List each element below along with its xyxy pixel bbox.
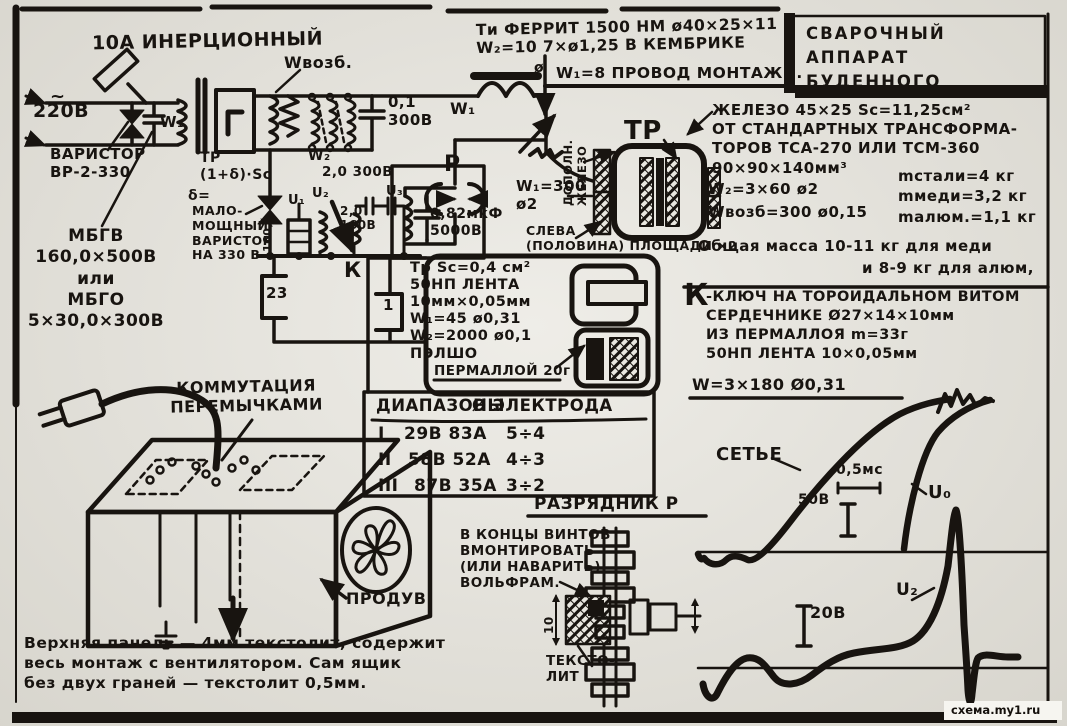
table-row-3-range: III [378,476,398,496]
label-airflow: ПРОДУВ [346,590,427,609]
table-header-electrode: Ø ЭЛЕКТРОДА [472,396,613,415]
label-mains-curve: СЕТЬЕ [716,444,782,465]
label-w1-300: W₁=300 ø2 [516,178,586,213]
label-tr-core: ТР (1+δ)·Sc [200,150,272,183]
label-excitation-winding: Wвозб. [284,54,352,73]
watermark: схема.my1.ru [948,703,1043,717]
label-terminal-23: 23 [266,285,288,303]
label-dim-10: 10 [542,616,556,634]
label-tr-small-spec: Тр Sc=0,4 см² 50НП ЛЕНТА 10мм×0,05мм W₁=… [410,260,532,363]
label-mains-voltage: 220В [33,100,89,122]
table-row-2-range: II [378,450,392,470]
label-masses: mстали=4 кг mмеди=3,2 кг mалюм.=1,1 кг [898,166,1036,227]
label-diameter-sign: ø [534,60,544,77]
label-cap-20-160: 2,0 160В [340,204,376,232]
schematic-page: СВАРОЧНЫЙ АППАРАТ БУДЕННОГО 10А ИНЕРЦИОН… [0,0,1067,726]
label-u2-curve: U₂ [896,580,918,600]
label-total-mass-2: и 8-9 кг для алюм, [862,260,1034,278]
label-spark-gap-title: РАЗРЯДНИК Р [534,494,679,514]
table-row-1-mode: 29В 83А [404,424,487,444]
label-permalloy: ПЕРМАЛЛОЙ 20г [434,364,571,380]
label-key-k: К [344,258,362,283]
label-key-spec: -КЛЮЧ НА ТОРОИДАЛЬНОМ ВИТОМ СЕРДЕЧНИКЕ Ø… [706,288,1020,363]
label-commutation: КОММУТАЦИЯ ПЕРЕМЫЧКАМИ [170,376,323,417]
table-row-2-mode: 58В 52А [408,450,491,470]
table-row-2-electrode: 4÷3 [506,450,545,470]
table-row-3-electrode: 3÷2 [506,476,545,496]
label-u3: U₃ [386,184,403,199]
label-terminal-1: 1 [383,297,394,315]
label-w1-winding: W₁ [160,114,184,132]
label-timescale: 0,5мс [836,462,883,479]
label-u0-curve: U₀ [928,482,952,503]
label-w2-winding: W₂ [308,148,331,165]
label-panel-note: Верхняя панель — 4мм текстолит, содержит… [24,633,445,693]
label-total-mass: Общая масса 10-11 кг для меди [698,238,992,256]
label-textolite: ТЕКСТО- ЛИТ [546,654,615,686]
label-cap-082: 0,82мкФ 5000В [430,206,503,239]
label-toroid-w1: W₁ [450,100,476,119]
table-row-3-mode: 87В 35А [414,476,497,496]
label-u1: U₁ [288,193,305,208]
label-capacitor-type: МБГВ 160,0×500В или МБГО 5×30,0×300В [20,226,172,332]
label-tungsten-note: В КОНЦЫ ВИНТОВ ВМОНТИРОВАТЬ (ИЛИ НАВАРИТ… [460,528,611,592]
label-key-winding: W=3×180 Ø0,31 [692,376,846,395]
label-spark-gap-p: Р [444,152,461,178]
label-cap-20: 2,0 300В [322,165,393,181]
label-tr-big: ТР [624,116,662,147]
label-varistor: ВАРИСТОР ВР-2-330 [50,146,146,181]
label-excitation-spec: Wвозб=300 ø0,15 [708,204,867,222]
label-voltscale-20: 20В [810,604,846,623]
label-voltscale-50: 50В [798,492,830,509]
table-row-1-electrode: 5÷4 [506,424,545,444]
table-row-1-range: I [378,424,385,444]
label-w1-wire-spec: W₁=8 ПРОВОД МОНТАЖН. [556,64,803,82]
label-cap-01: 0,1 300В [388,94,433,129]
label-u2: U₂ [312,186,329,201]
label-w2-spec: W₂=3×60 ø2 [708,181,819,199]
page-title: СВАРОЧНЫЙ АППАРАТ БУДЕННОГО [806,22,946,94]
label-160: 160,0 [262,215,275,252]
label-ferrite-spec: Ти ФЕРРИТ 1500 НМ ø40×25×11 W₂=10 7×ø1,2… [476,15,778,58]
